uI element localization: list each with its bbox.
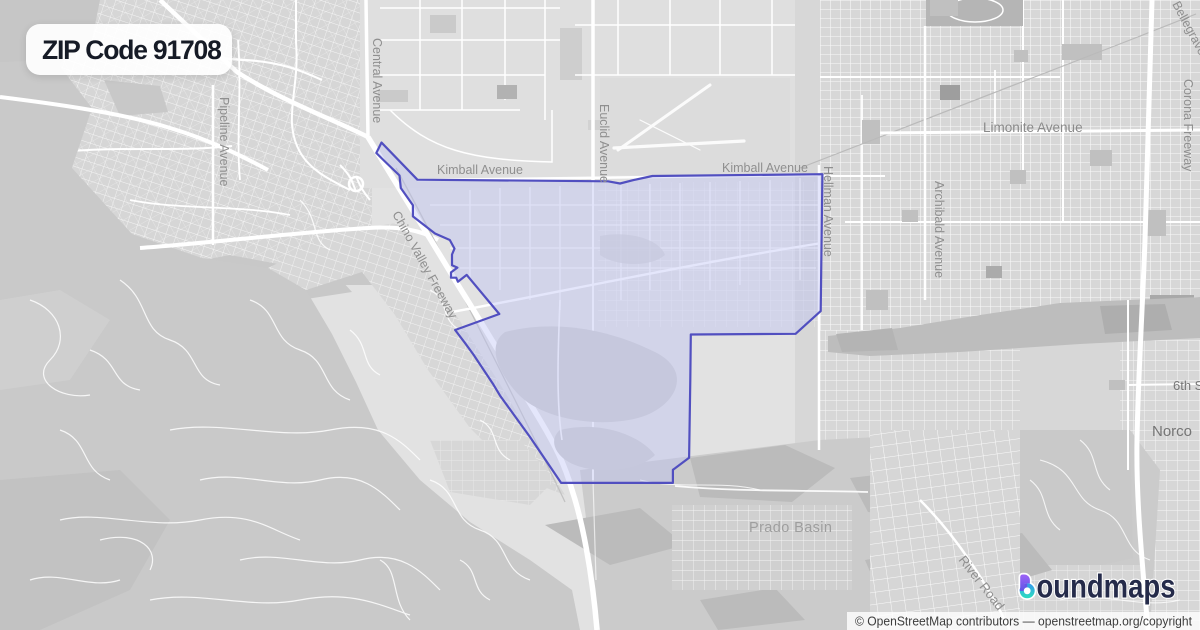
svg-text:Hellman Avenue: Hellman Avenue	[821, 166, 835, 257]
svg-text:oundmaps: oundmaps	[1037, 570, 1176, 605]
svg-text:Euclid Avenue: Euclid Avenue	[597, 104, 611, 183]
svg-text:Norco: Norco	[1152, 423, 1192, 440]
svg-text:6th S: 6th S	[1173, 378, 1200, 393]
svg-text:Archibald Avenue: Archibald Avenue	[932, 181, 946, 278]
svg-text:Limonite Avenue: Limonite Avenue	[983, 120, 1083, 135]
svg-text:© OpenStreetMap contributors —: © OpenStreetMap contributors — openstree…	[855, 614, 1192, 629]
svg-text:Prado Basin: Prado Basin	[749, 520, 832, 536]
svg-text:Kimball Avenue: Kimball Avenue	[722, 161, 808, 175]
svg-text:Central Avenue: Central Avenue	[370, 38, 384, 123]
svg-text:Kimball Avenue: Kimball Avenue	[437, 163, 523, 177]
svg-text:Pipeline Avenue: Pipeline Avenue	[217, 97, 231, 186]
svg-text:Corona Freeway: Corona Freeway	[1181, 79, 1195, 172]
